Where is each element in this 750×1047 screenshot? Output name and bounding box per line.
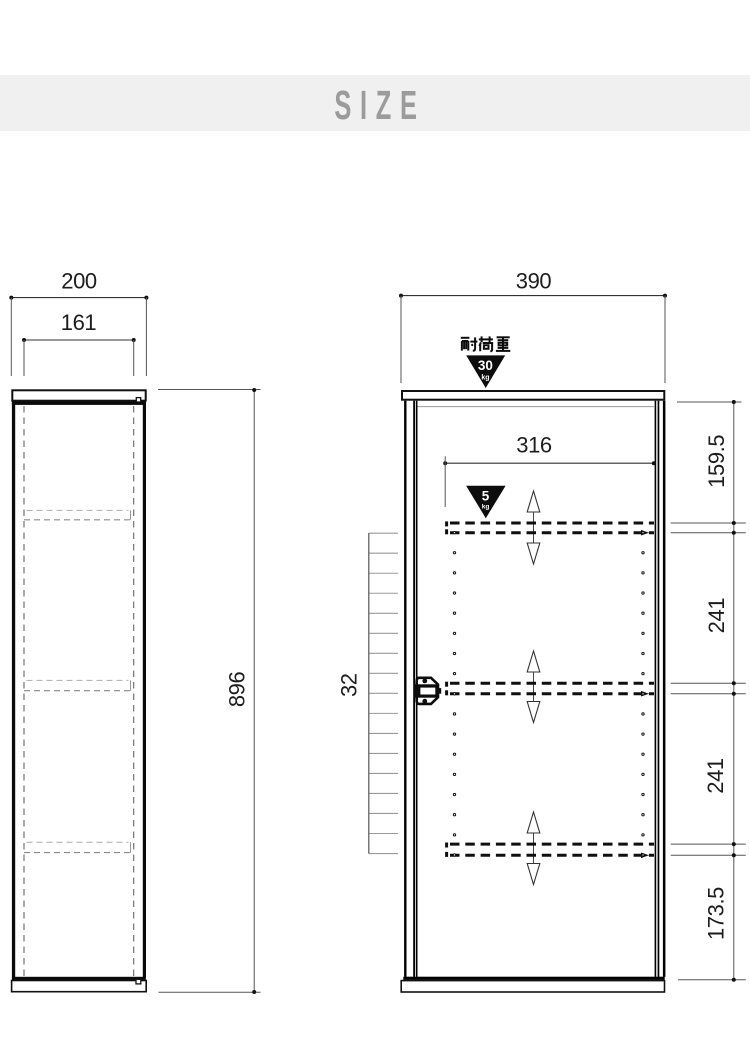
- svg-text:5: 5: [482, 489, 490, 504]
- svg-text:200: 200: [61, 268, 97, 293]
- svg-text:32: 32: [337, 673, 362, 697]
- svg-text:241: 241: [703, 758, 728, 794]
- svg-text:390: 390: [516, 268, 552, 293]
- svg-text:161: 161: [61, 310, 97, 335]
- svg-text:896: 896: [225, 671, 250, 707]
- svg-text:kg: kg: [481, 375, 489, 382]
- svg-text:kg: kg: [482, 504, 490, 511]
- svg-text:316: 316: [516, 432, 552, 457]
- svg-text:30: 30: [478, 358, 493, 373]
- svg-text:173.5: 173.5: [704, 887, 729, 940]
- svg-text:241: 241: [704, 598, 729, 634]
- svg-text:159.5: 159.5: [704, 435, 729, 488]
